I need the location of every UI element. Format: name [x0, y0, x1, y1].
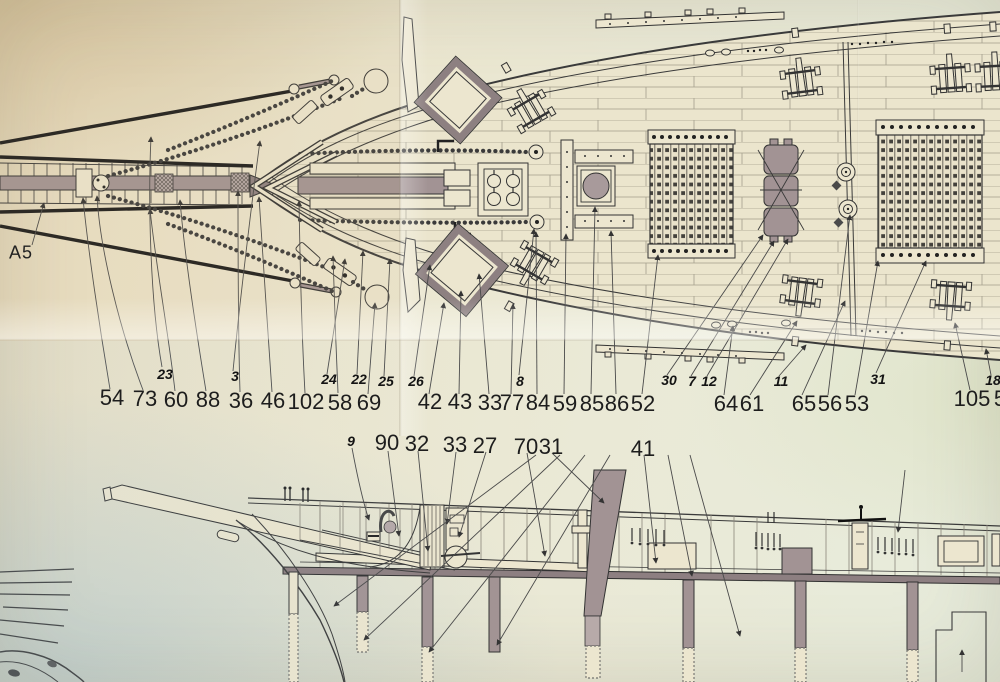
part-number-label: 33 — [478, 390, 502, 416]
view-ref-label: A5 — [9, 243, 33, 264]
part-number-label: 23 — [157, 366, 173, 382]
foremast-profile — [584, 470, 626, 616]
part-number-label: 26 — [408, 373, 424, 389]
block-top — [364, 69, 388, 93]
fore-grating — [648, 130, 735, 258]
part-number-label: 56 — [818, 391, 842, 417]
part-number-label: 59 — [553, 391, 577, 417]
part-number-label: 46 — [261, 388, 285, 414]
corner-detail — [0, 569, 84, 682]
part-number-label: 52 — [631, 391, 655, 417]
part-number-label: 32 — [405, 431, 429, 457]
part-number-label: 69 — [357, 390, 381, 416]
part-number-label: 58 — [328, 390, 352, 416]
bowsprit — [0, 163, 278, 205]
part-number-label: 84 — [526, 390, 550, 416]
part-number-label: 12 — [701, 373, 717, 389]
part-number-label: 33 — [443, 432, 467, 458]
part-number-label: 42 — [418, 389, 442, 415]
stowed-spars — [758, 139, 804, 242]
part-number-label: 90 — [375, 430, 399, 456]
fore-channel-top — [596, 8, 784, 28]
deck-plan-view — [0, 8, 1000, 395]
part-number-label: 53 — [845, 391, 869, 417]
fore-channel-bottom — [596, 345, 784, 363]
bowsprit-saddle — [76, 169, 92, 197]
part-number-label: 73 — [133, 386, 157, 412]
companionway-window — [938, 536, 984, 566]
part-number-label: 31 — [539, 434, 563, 460]
part-number-label: 41 — [631, 436, 655, 462]
bottom-right-inset — [936, 612, 986, 682]
pin-rail-bar — [838, 519, 886, 521]
part-number-label: 70 — [514, 434, 538, 460]
main-grating — [876, 120, 984, 263]
part-number-label: 11 — [774, 373, 789, 389]
part-number-label: 7 — [688, 373, 696, 389]
part-number-label-clipped: 5 — [994, 386, 1000, 412]
plan-drawing — [0, 0, 1000, 682]
bowsprit-profile — [109, 485, 432, 570]
part-number-label: 22 — [351, 371, 367, 387]
part-number-label: 43 — [448, 389, 472, 415]
part-number-label: 31 — [870, 371, 886, 387]
part-number-label: 36 — [229, 388, 253, 414]
cathead-blade-top — [402, 17, 419, 112]
part-number-label: 61 — [740, 391, 764, 417]
part-number-label: 77 — [500, 390, 524, 416]
part-number-label: 24 — [321, 371, 337, 387]
block-bottom — [365, 285, 389, 309]
part-number-label: 60 — [164, 387, 188, 413]
riding-bitts-frame — [478, 163, 528, 216]
part-number-label: 54 — [100, 385, 124, 411]
part-number-label: 64 — [714, 391, 738, 417]
part-number-label: 85 — [580, 391, 604, 417]
part-number-label: 3 — [231, 368, 239, 384]
part-number-label: 30 — [661, 372, 677, 388]
capstan-wheel — [445, 546, 467, 568]
part-number-label: 65 — [792, 391, 816, 417]
hawse-hole — [216, 529, 239, 542]
part-number-label: 8 — [516, 373, 524, 389]
part-number-label: 86 — [605, 391, 629, 417]
part-number-label: 102 — [288, 389, 325, 415]
part-number-label: 105 — [954, 386, 991, 412]
profile-bow — [103, 485, 455, 682]
bowsprit-heel — [298, 177, 448, 194]
part-number-label: 25 — [378, 373, 394, 389]
profile-view — [0, 448, 1000, 682]
part-number-label: 88 — [196, 387, 220, 413]
part-number-label: 9 — [347, 433, 355, 449]
ship-plan-sheet-photo: A5 23 3 24 22 25 26 8 30 7 12 11 31 18 5… — [0, 0, 1000, 682]
part-number-label: 27 — [473, 433, 497, 459]
